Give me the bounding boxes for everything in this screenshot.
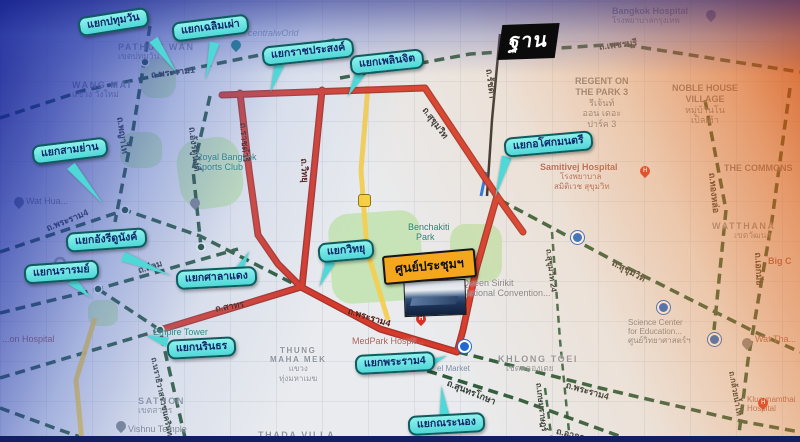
poi-big-c: Big C [768, 256, 792, 266]
poi-regent-on-the-park: REGENT ON THE PARK 3 รีเจ้นท์ ออน เดอะ ป… [575, 76, 629, 130]
road-label-ekkamai: ถ.เอกมัย [751, 252, 767, 286]
metro-station-icon [708, 333, 721, 346]
callout-narinthorn: แยกนรินธร [167, 336, 237, 360]
metro-station-icon [458, 340, 471, 353]
metro-station-icon [657, 301, 670, 314]
metro-station-icon [571, 231, 584, 244]
poi-the-commons: THE COMMONS [724, 163, 793, 173]
callout-rama4: แยกพระราม4 [355, 351, 436, 375]
district-wang-mai: WANG MAI แขวง วังใหม่ [72, 80, 132, 100]
poi-vishnu-temple: Vishnu Temple [128, 424, 187, 434]
junction-dot-nararom [94, 285, 102, 293]
poi-benchakitti-park: Benchakiti Park [408, 222, 450, 243]
route-sukhumvit-stub [497, 196, 523, 232]
junction-dot-henri-dunant [197, 243, 205, 251]
watermark-logo-bar [516, 50, 551, 55]
route-sukhumvit [425, 88, 497, 196]
poi-market: el Market [437, 364, 470, 373]
poi-queen-sirikit-center: Queen Sirikit National Convention... [462, 278, 551, 299]
poi-noble-house-village: NOBLE HOUSE VILLAGE หมู่บ้านโน เบิลเฮ้า [672, 83, 738, 126]
poi-science-center: Science Center for Education... ศูนย์วิท… [628, 318, 691, 346]
district-khlong-toei: KHLONG TOEI เขตคลองเตย [498, 354, 578, 374]
poi-bangkok-hospital: Bangkok Hospital โรงพยาบาลกรุงเทพ [612, 6, 688, 26]
road-thong-lo [705, 100, 726, 330]
poi-wat-hua: Wat Hua... [26, 196, 68, 206]
poi-wat-tha: Wat Tha... [755, 334, 796, 344]
convention-center-photo [403, 279, 466, 317]
district-thung-maha-mek: THUNG MAHA MEK แขวง ทุ่งมหาเมฆ [270, 346, 327, 383]
poi-centralworld: centralwOrld [248, 28, 299, 38]
poi-hospital-left-edge: ...on Hospital [2, 334, 55, 344]
poi-kluaynamthai-hospital: Kluaynamthai Hospital [747, 395, 795, 413]
footer-strip [0, 436, 800, 442]
road-label-witthayu: ถ.วิทยุ [297, 158, 312, 183]
expressway-shield-icon [358, 194, 371, 207]
junction-dot-sam-yan [121, 206, 129, 214]
district-watthana: WATTHANA เขตวัฒนา [712, 221, 776, 241]
callout-na-ranong: แยกณระนอง [408, 412, 486, 436]
poi-samitivej-hospital: Samitivej Hospital โรงพยาบาล สมิติเวช สุ… [540, 162, 618, 191]
news-map-graphic: PATHUM WAN เขตปทุมวัน WANG MAI แขวง วังใ… [0, 0, 800, 442]
poi-medpark-hospital: MedPark Hospit... [352, 336, 424, 346]
expressway-bottom-left [76, 318, 95, 442]
